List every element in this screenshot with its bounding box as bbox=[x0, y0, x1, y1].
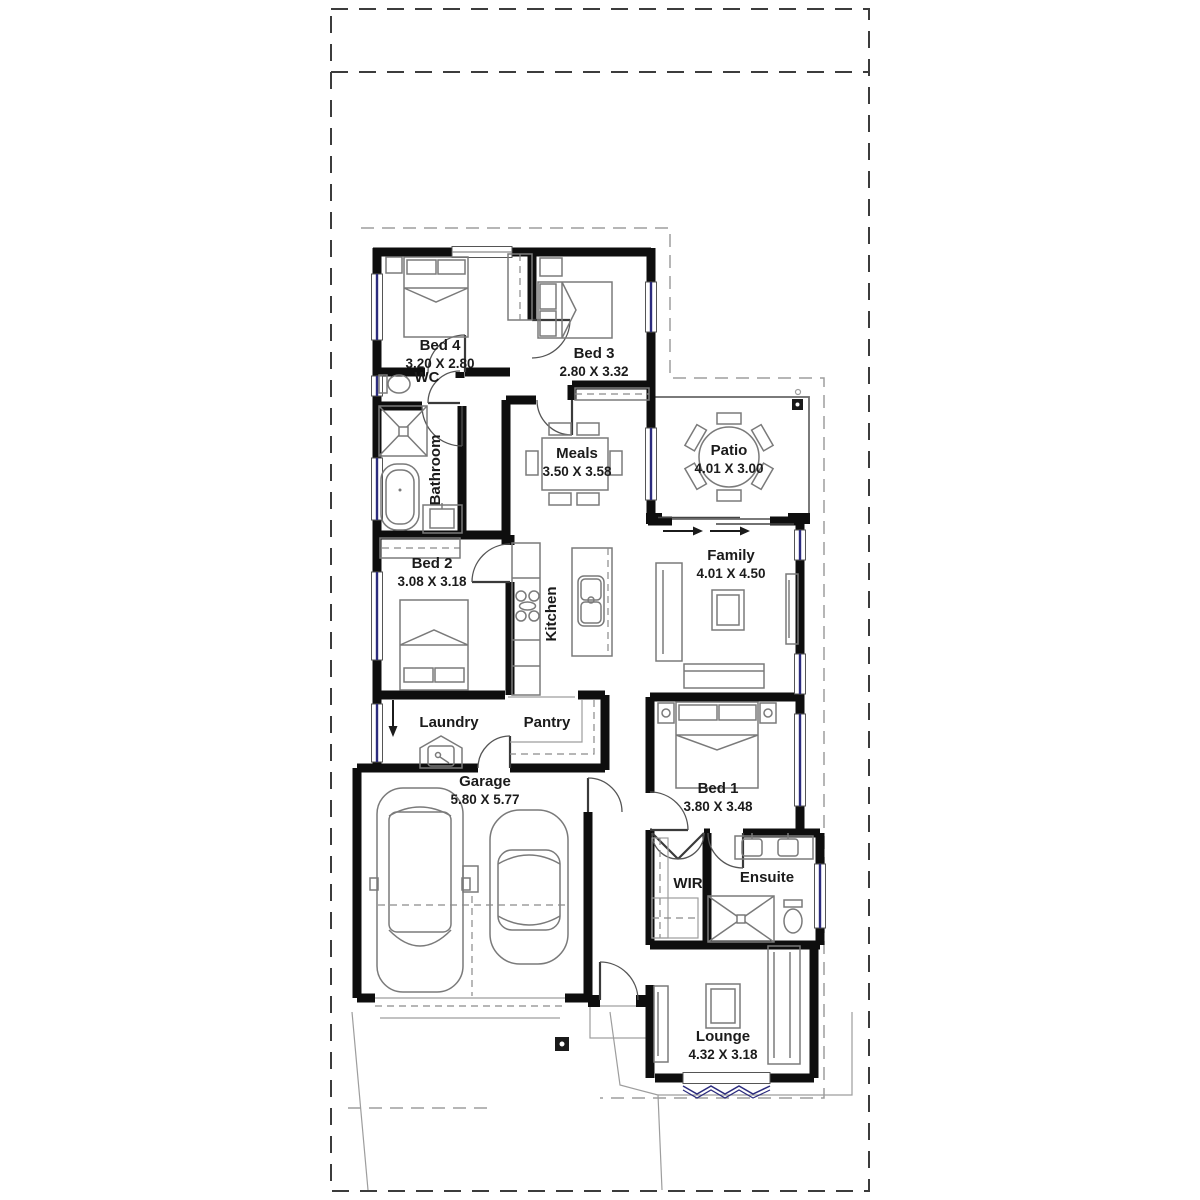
garage-contents bbox=[370, 788, 568, 1006]
family-furniture bbox=[656, 563, 798, 688]
front-door bbox=[600, 962, 638, 1000]
door-ensuite bbox=[708, 833, 743, 868]
floorplan-page: Bed 4 3.20 X 2.80 Bed 3 2.80 X 3.32 WC B… bbox=[0, 0, 1200, 1200]
laundry-fixtures bbox=[389, 700, 463, 768]
room-label-wc: WC bbox=[415, 369, 440, 386]
room-dims-lounge: 4.32 X 3.18 bbox=[688, 1047, 758, 1062]
bathroom-fixtures bbox=[379, 406, 462, 533]
wc-toilet bbox=[379, 375, 410, 393]
window-bed1 bbox=[795, 714, 806, 806]
room-label-bathroom: Bathroom bbox=[427, 435, 444, 506]
room-label-kitchen: Kitchen bbox=[543, 586, 560, 641]
room-label-laundry: Laundry bbox=[419, 714, 479, 731]
room-label-lounge: Lounge bbox=[696, 1028, 750, 1045]
door-bed1 bbox=[650, 792, 688, 830]
door-meals bbox=[537, 400, 572, 435]
window-bed3 bbox=[646, 282, 657, 332]
room-dims-patio: 4.01 X 3.00 bbox=[694, 461, 763, 476]
room-label-patio: Patio bbox=[711, 442, 748, 459]
room-label-family: Family bbox=[707, 547, 755, 564]
window-ensuite bbox=[815, 864, 826, 928]
window-family-1 bbox=[795, 530, 806, 560]
bed1-furniture bbox=[658, 702, 776, 788]
room-label-meals: Meals bbox=[556, 445, 598, 462]
room-label-pantry: Pantry bbox=[524, 714, 571, 731]
window-bed2 bbox=[372, 572, 383, 660]
door-hall-garage bbox=[588, 778, 622, 812]
room-label-bed2: Bed 2 bbox=[412, 555, 453, 572]
room-dims-bed3: 2.80 X 3.32 bbox=[559, 364, 628, 379]
room-label-bed1: Bed 1 bbox=[698, 780, 739, 797]
door-garage-internal bbox=[478, 736, 510, 768]
room-dims-bed2: 3.08 X 3.18 bbox=[397, 574, 467, 589]
room-label-ensuite: Ensuite bbox=[740, 869, 794, 886]
room-dims-garage: 5.80 X 5.77 bbox=[450, 792, 519, 807]
meter-box-porch bbox=[555, 1037, 569, 1051]
door-bed2 bbox=[472, 544, 510, 582]
window-family-2 bbox=[795, 654, 806, 694]
room-label-bed3: Bed 3 bbox=[574, 345, 615, 362]
bed4-furniture bbox=[386, 257, 468, 337]
room-label-wir: WIR bbox=[673, 875, 702, 892]
sliding-arrows bbox=[663, 527, 750, 536]
window-lounge bbox=[683, 1073, 770, 1099]
window-meals bbox=[646, 428, 657, 500]
highlight-window-top bbox=[452, 247, 512, 258]
hall-cupboard bbox=[575, 388, 649, 400]
room-dims-family: 4.01 X 4.50 bbox=[696, 566, 765, 581]
ensuite-fixtures bbox=[708, 833, 813, 942]
kitchen-fixtures bbox=[508, 543, 612, 697]
window-bed4 bbox=[372, 274, 383, 340]
floorplan-canvas: Bed 4 3.20 X 2.80 Bed 3 2.80 X 3.32 WC B… bbox=[0, 0, 1200, 1200]
room-label-garage: Garage bbox=[459, 773, 511, 790]
entry-door-glazed bbox=[372, 704, 383, 762]
room-label-bed4: Bed 4 bbox=[420, 337, 462, 354]
room-dims-meals: 3.50 X 3.58 bbox=[542, 464, 612, 479]
room-dims-bed1: 3.80 X 3.48 bbox=[683, 799, 753, 814]
